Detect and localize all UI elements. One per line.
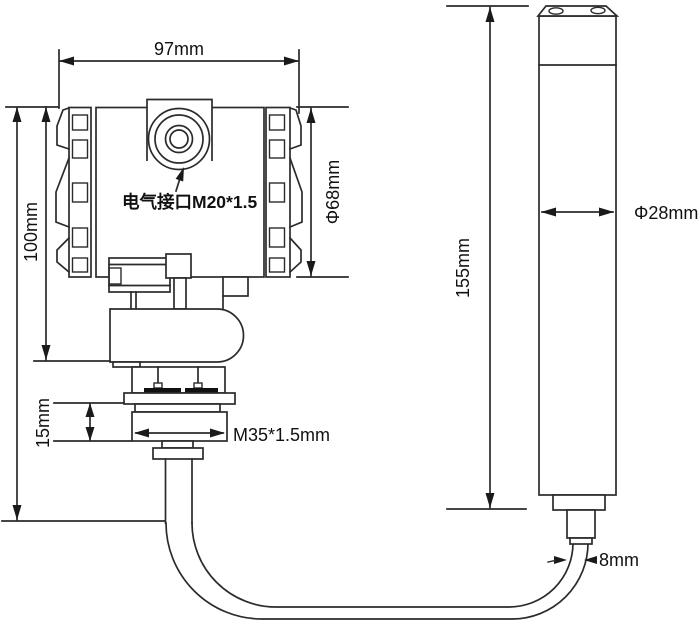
dim-cable-diameter: 8mm [548, 550, 639, 570]
cable-entry-rings [149, 109, 210, 170]
dim-probe-length-label: 155mm [453, 238, 473, 298]
rib-fins-right [290, 108, 302, 272]
technical-drawing-page: 97mm 100mm 15mm Φ68mm M35*1.5mm [0, 0, 700, 629]
probe-cap [538, 6, 617, 16]
tube-collar [153, 448, 203, 459]
flange [124, 393, 235, 404]
dim-top-width-label: 97mm [154, 39, 204, 59]
rib-strip-left [56, 108, 91, 278]
dim-thread-length-label: 15mm [33, 398, 53, 448]
technical-drawing: 97mm 100mm 15mm Φ68mm M35*1.5mm [0, 0, 700, 629]
cap-hole-right [591, 7, 605, 13]
probe-cable-gland [567, 510, 595, 538]
drop-tube [166, 459, 193, 523]
dim-probe-diameter-label: Φ28mm [634, 203, 698, 223]
rib-fins-left [56, 108, 69, 272]
process-connection [109, 254, 248, 523]
dim-housing-diameter-label: Φ68mm [323, 160, 343, 224]
dim-thread-spec-label: M35*1.5mm [233, 425, 330, 445]
dim-thread-length: 15mm [33, 398, 131, 448]
dim-housing-diameter: Φ68mm [297, 107, 348, 277]
cap-hole-left [549, 8, 563, 14]
cable [166, 523, 588, 619]
mounting-clamp [110, 309, 244, 362]
probe-body [539, 16, 616, 495]
bracket-post [174, 278, 186, 309]
probe-end-step [553, 495, 605, 510]
cable-inner-line [192, 523, 573, 607]
rib-strip-right [266, 108, 302, 278]
bracket-post-left [131, 292, 136, 309]
dim-cable-diameter-label: 8mm [599, 550, 639, 570]
bracket-step-right [223, 277, 248, 296]
electrical-interface-label: 电气接口M20*1.5 [122, 192, 257, 212]
gland-taper [570, 538, 592, 544]
drop-tube-assembly [153, 441, 203, 523]
flange-neck [135, 404, 220, 412]
probe [538, 6, 617, 544]
cable-entry-boss [147, 100, 212, 170]
dim-probe-length: 155mm [447, 6, 528, 509]
transmitter-head [56, 100, 302, 278]
dim-housing-height-label: 100mm [21, 202, 41, 262]
bracket-block [166, 254, 191, 278]
